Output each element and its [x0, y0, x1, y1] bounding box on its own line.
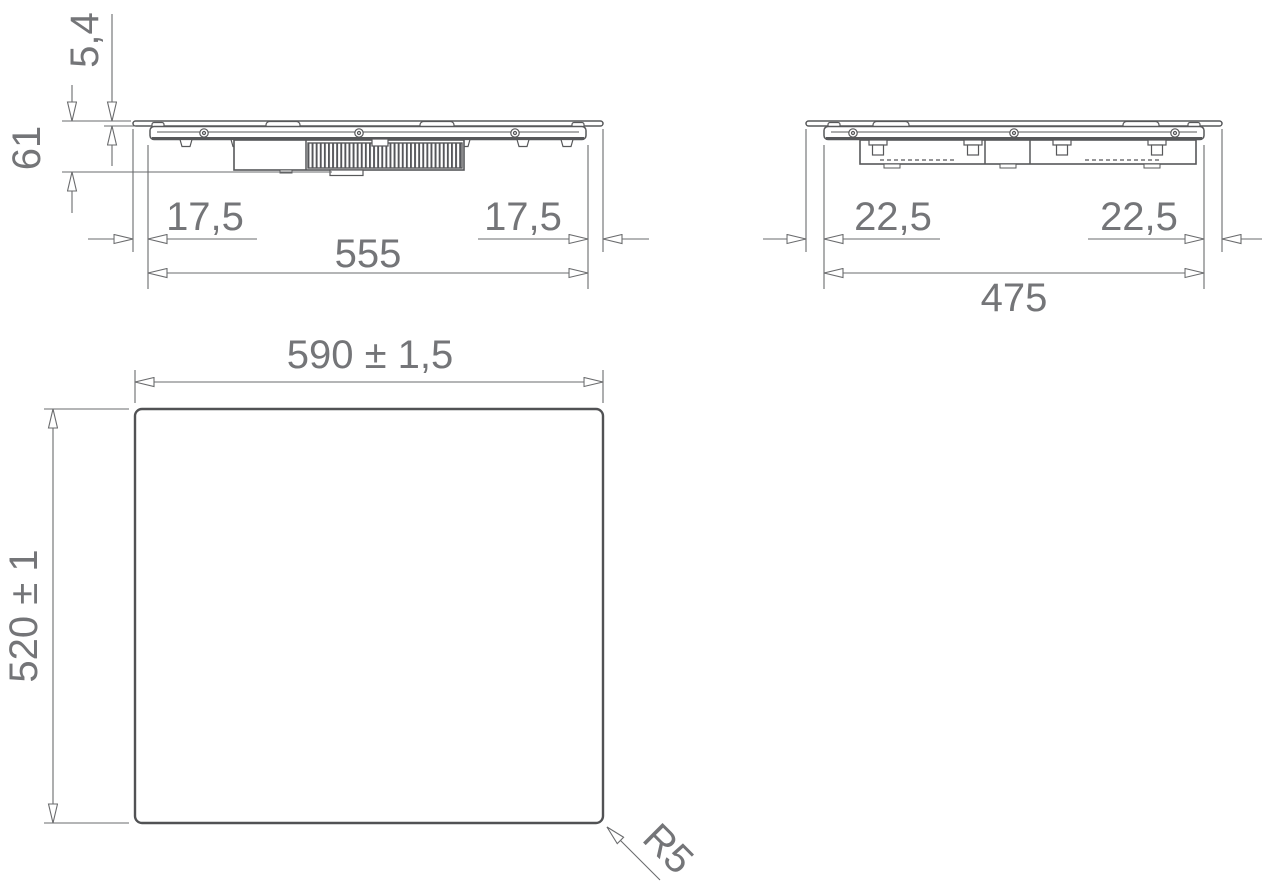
label-body-width: 555 — [335, 232, 402, 276]
label-side-left-overhang: 22,5 — [854, 195, 932, 239]
dimension-drawing: 5,4 61 17,5 17,5 555 — [0, 0, 1267, 884]
plan-view — [135, 409, 603, 823]
front-heatsink-fins — [308, 143, 462, 168]
label-total-height: 61 — [5, 126, 49, 171]
front-mounting-frame — [150, 127, 586, 140]
label-side-right-overhang: 22,5 — [1100, 195, 1178, 239]
front-electronics-box — [234, 139, 464, 176]
plan-cutout-outline — [135, 409, 603, 823]
front-bottom-tab — [330, 170, 363, 176]
label-body-depth: 475 — [981, 276, 1048, 320]
label-corner-radius: R5 — [634, 815, 701, 882]
technical-drawing-canvas: 5,4 61 17,5 17,5 555 — [0, 0, 1267, 884]
label-cutout-width: 590 ± 1,5 — [287, 333, 454, 377]
side-electronics-box — [860, 140, 1196, 168]
label-front-right-overhang: 17,5 — [484, 195, 562, 239]
label-cutout-depth: 520 ± 1 — [2, 549, 46, 682]
label-front-left-overhang: 17,5 — [166, 195, 244, 239]
side-section-view — [806, 121, 1222, 168]
label-glass-thickness: 5,4 — [63, 12, 107, 68]
front-section-view — [133, 121, 603, 176]
front-glass-panel — [133, 121, 603, 126]
